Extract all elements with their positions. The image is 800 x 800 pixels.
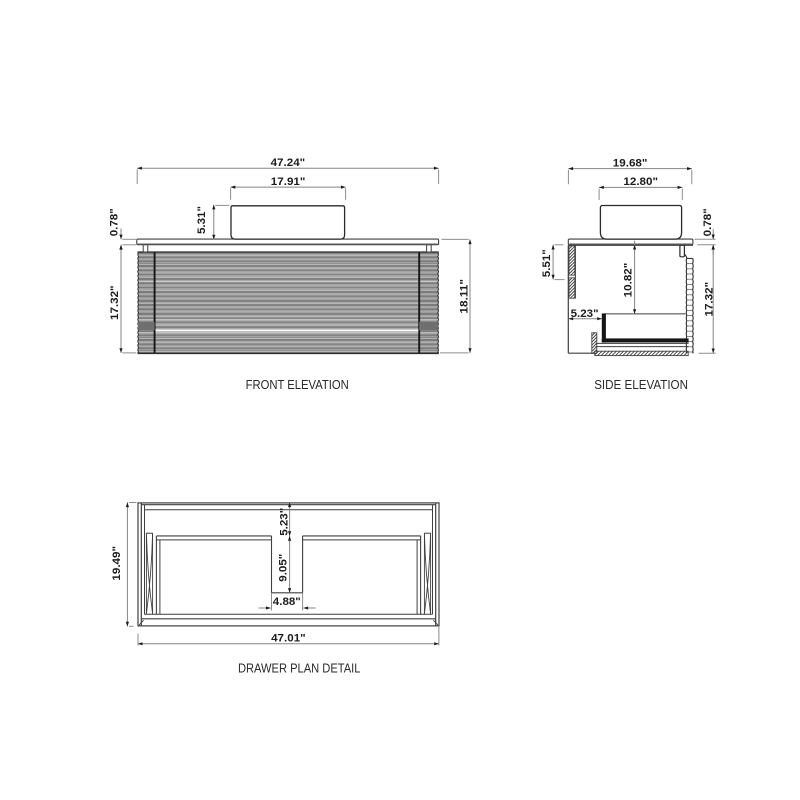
svg-text:SIDE ELEVATION: SIDE ELEVATION <box>594 377 688 392</box>
svg-text:9.05": 9.05" <box>278 554 290 582</box>
svg-text:0.78": 0.78" <box>108 208 120 236</box>
svg-text:DRAWER PLAN DETAIL: DRAWER PLAN DETAIL <box>238 661 361 676</box>
svg-text:19.49": 19.49" <box>111 546 123 581</box>
svg-text:10.82": 10.82" <box>622 263 634 298</box>
svg-text:4.88": 4.88" <box>273 596 301 608</box>
svg-text:47.24": 47.24" <box>271 157 306 169</box>
svg-text:17.32": 17.32" <box>109 285 121 320</box>
svg-text:FRONT ELEVATION: FRONT ELEVATION <box>246 377 349 392</box>
svg-text:17.32": 17.32" <box>704 282 716 317</box>
svg-text:47.01": 47.01" <box>271 633 306 645</box>
svg-text:17.91": 17.91" <box>271 176 306 188</box>
svg-text:18.11": 18.11" <box>459 279 471 314</box>
svg-text:5.23": 5.23" <box>571 308 599 320</box>
svg-text:5.23": 5.23" <box>279 508 291 536</box>
svg-text:5.31": 5.31" <box>196 206 208 234</box>
svg-text:19.68": 19.68" <box>613 157 648 169</box>
svg-text:12.80": 12.80" <box>623 176 658 188</box>
svg-text:5.51": 5.51" <box>541 249 553 277</box>
svg-text:0.78": 0.78" <box>702 208 714 236</box>
